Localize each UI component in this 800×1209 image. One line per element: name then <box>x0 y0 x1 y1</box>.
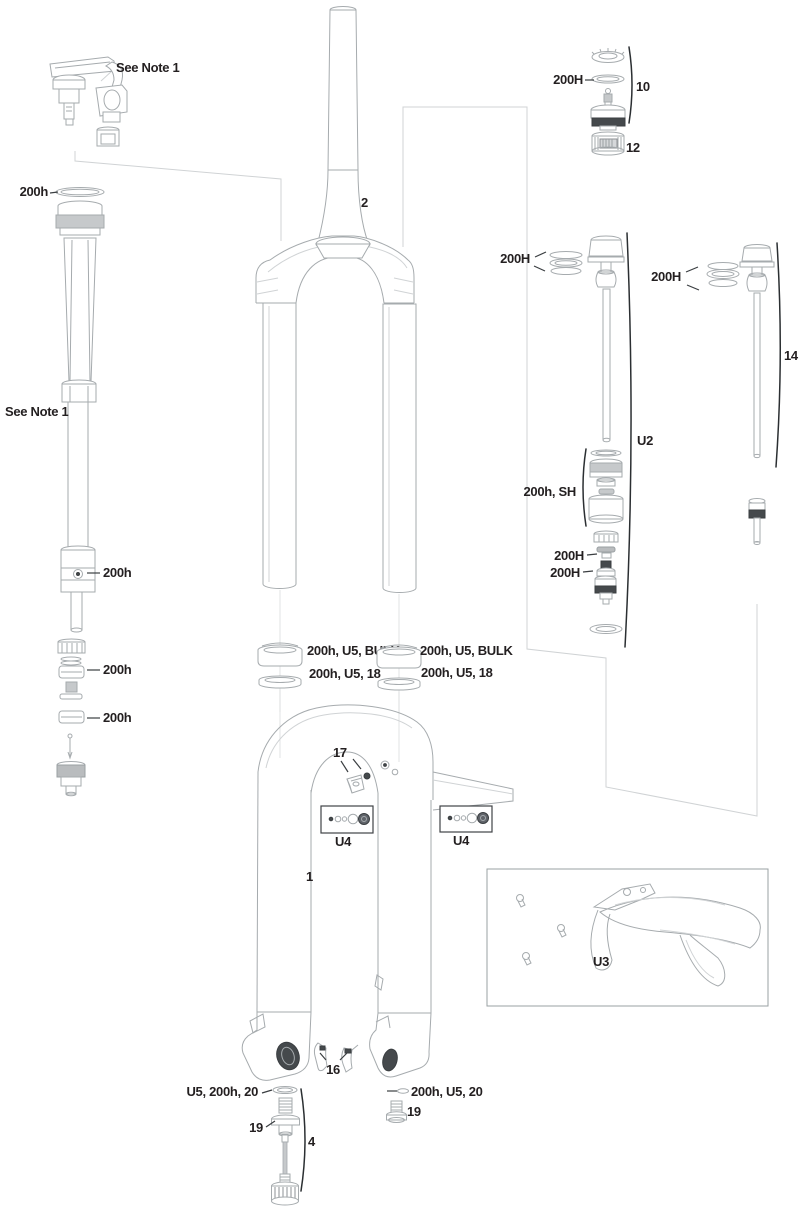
lower-leg-assembly: 1 <box>242 705 513 1080</box>
air-shaft-assembly-u2: 200H U2 200h, SH 200H 200H <box>500 233 653 647</box>
crush-washer-right-label: 200h, U5, 20 <box>411 1084 483 1099</box>
rebound-adjuster-4: 4 <box>272 1089 317 1205</box>
damper-seal-lower-label: 200h <box>103 710 132 725</box>
adjuster-knob-12: 12 <box>592 132 640 155</box>
hose-guide-label: 17 <box>333 745 347 760</box>
damper-shaft-assembly-14: 200H 14 <box>651 243 799 545</box>
top-cap-assembly-10: 200H 10 <box>553 47 650 130</box>
fork-exploded-diagram: See Note 1 200h 200h 200h <box>0 0 800 1209</box>
lower-leg-label: 1 <box>306 869 313 884</box>
u3-label: U3 <box>593 954 609 969</box>
fender-kit-u3: U3 <box>487 869 768 1006</box>
guide-16-label: 16 <box>326 1062 340 1077</box>
air-piston-seal-lower-label: 200H <box>550 565 580 580</box>
damper-seal-upper-label: 200h <box>103 662 132 677</box>
u2-label: U2 <box>637 433 653 448</box>
damper-body-label: 200h <box>103 565 132 580</box>
shaft-bolt-kit-left: U5, 200h, 20 19 <box>186 1084 299 1136</box>
fastener-kit-u4-left: U4 <box>321 806 373 849</box>
shaft14-seals-label: 200H <box>651 269 681 284</box>
dust-seal-right-label: 200h, U5, BULK <box>420 643 514 658</box>
u4-left-label: U4 <box>335 834 352 849</box>
shaft-bolt-left-label: 19 <box>249 1120 263 1135</box>
fender-bolts <box>517 895 567 966</box>
u4-right-label: U4 <box>453 833 470 848</box>
note-left-label: See Note 1 <box>5 404 69 419</box>
shaft-bolt-right-label: 19 <box>407 1104 421 1119</box>
exploded-diagram-page: See Note 1 200h 200h 200h <box>0 0 800 1209</box>
air-piston-seal-upper-label: 200H <box>554 548 584 563</box>
crush-washer-left-label: U5, 200h, 20 <box>186 1084 258 1099</box>
steerer-label: 2 <box>361 195 368 210</box>
rebound-group-label: 4 <box>308 1134 316 1149</box>
note-top-label: See Note 1 <box>116 60 180 75</box>
adjuster-knob-label: 12 <box>626 140 640 155</box>
top-cap-seal-label: 200H <box>553 72 583 87</box>
foam-ring-right: 200h, U5, 18 <box>378 665 493 690</box>
foam-ring-left: 200h, U5, 18 <box>259 666 381 688</box>
crown-race-seal-label: 200h <box>20 184 49 199</box>
remote-lockout-lever: See Note 1 <box>50 57 180 146</box>
shaft14-label: 14 <box>784 348 799 363</box>
air-top-seals-label: 200H <box>500 251 530 266</box>
top-cap-group-label: 10 <box>636 79 650 94</box>
fastener-kit-u4-right: U4 <box>440 806 492 848</box>
foam-ring-right-label: 200h, U5, 18 <box>421 665 493 680</box>
cable-guide-clips-16: 16 <box>314 1043 358 1077</box>
left-damper-assembly: 200h 200h 200h 200h <box>5 184 132 796</box>
crown-steerer-upper-tubes: 2 <box>256 7 416 593</box>
seal-head-label: 200h, SH <box>523 484 576 499</box>
shaft-bolt-kit-right: 200h, U5, 20 19 <box>387 1084 483 1123</box>
foam-ring-left-label: 200h, U5, 18 <box>309 666 381 681</box>
